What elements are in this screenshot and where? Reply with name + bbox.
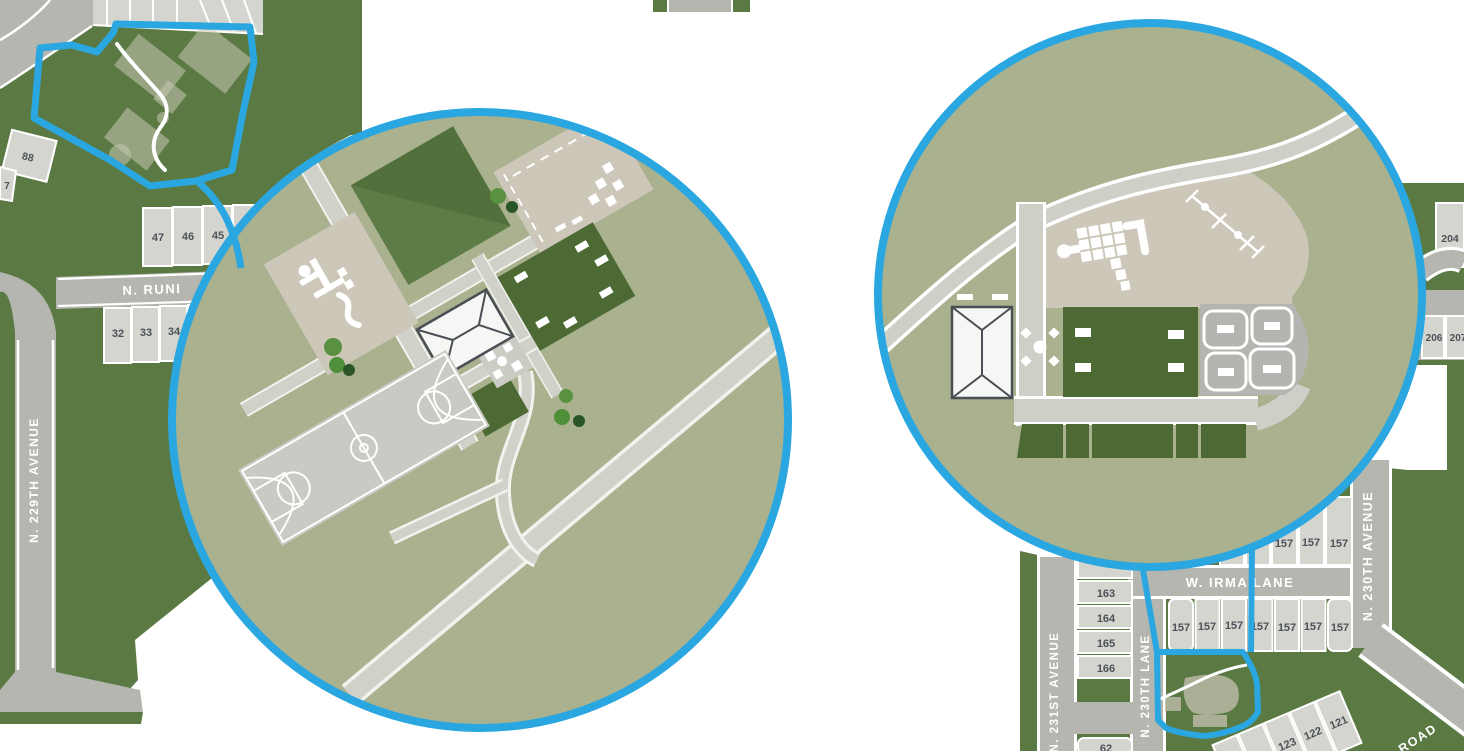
street-label-runi: N. RUNI	[122, 281, 181, 298]
lot-204: 204	[1441, 233, 1459, 245]
lot-157: 157	[1278, 622, 1296, 634]
street-label-229th: N. 229TH AVENUE	[27, 417, 41, 543]
lot-47: 47	[152, 232, 164, 244]
pickleball-courts	[1200, 304, 1309, 395]
lot-165: 165	[1097, 638, 1115, 650]
lot-207: 207	[1450, 333, 1464, 344]
lot-46: 46	[182, 231, 194, 243]
lot-166: 166	[1097, 663, 1115, 675]
lot-157: 157	[1304, 621, 1322, 633]
top-road-strip	[653, 0, 750, 12]
lot-164: 164	[1097, 613, 1116, 625]
lot-157: 157	[1330, 538, 1348, 550]
event-court-right	[1063, 307, 1198, 397]
lot-157: 157	[1198, 621, 1216, 633]
lot-33: 33	[140, 327, 152, 339]
lot-32: 32	[112, 328, 124, 340]
map-canvas: N. 229TH AVENUE N. RUNI 47 46 45 32 33 3	[0, 0, 1464, 751]
lot-157: 157	[1275, 538, 1293, 550]
callout-connector-right-b	[1251, 544, 1252, 652]
street-label-230th-ave: N. 230TH AVENUE	[1361, 491, 1375, 621]
street-label-230th-lane: N. 230TH LANE	[1140, 634, 1152, 737]
lot-row-irma-south: 157 157 157 157 157 157 157	[1169, 599, 1352, 651]
street-label-irma: W. IRMA LANE	[1186, 575, 1295, 590]
lot-206: 206	[1426, 333, 1443, 344]
lot-7: 7	[4, 181, 10, 192]
lot-34: 34	[168, 326, 181, 338]
ramada-icon	[952, 294, 1012, 398]
lot-157: 157	[1302, 537, 1320, 549]
lot-157: 157	[1331, 622, 1349, 634]
lot-62: 62	[1100, 743, 1112, 751]
lot-157: 157	[1172, 622, 1190, 634]
right-callout-circle[interactable]	[870, 23, 1422, 567]
road-231st-avenue: N. 231ST AVENUE	[1037, 554, 1077, 751]
street-label-231st: N. 231ST AVENUE	[1049, 632, 1061, 751]
lot-163: 163	[1097, 588, 1115, 600]
lot-157: 157	[1225, 620, 1243, 632]
community-map: N. 229TH AVENUE N. RUNI 47 46 45 32 33 3	[0, 0, 1464, 751]
road-cross	[1074, 702, 1136, 734]
lot-45: 45	[212, 230, 224, 242]
hedge-strips	[1017, 424, 1246, 458]
